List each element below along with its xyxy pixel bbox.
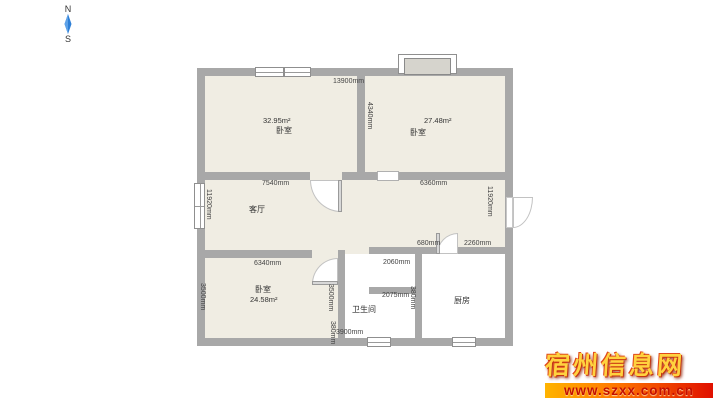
kitchen-label: 厨房 [454,297,470,305]
kitchen-bath-floor [345,254,505,338]
dim-sw-left-height: 3500mm [199,283,206,310]
dim-bath-right-stub: 380mm [409,286,416,309]
compass: N S [55,4,81,44]
door-leaf-sw-bedroom [312,281,338,285]
dim-left-height: 11920mm [205,189,212,220]
wall-bedroom-divider [357,76,365,172]
door-opening-ne-bedroom [377,171,399,181]
bedroom-sw-area: 24.58m² [250,296,278,304]
dim-ne-width: 6360mm [420,180,447,187]
dim-ne-divider: 4340mm [366,102,373,129]
compass-needle-icon [62,14,74,34]
window-nw-left [255,67,284,77]
dim-kitchen-door-offset: 680mm [417,240,440,247]
dim-nw-width: 7540mm [262,180,289,187]
bedroom-nw-label: 卧室 [276,127,292,135]
compass-north-label: N [55,4,81,14]
bedroom-ne-label: 卧室 [410,129,426,137]
dim-sw-bottom-stub: 380mm [329,321,336,344]
watermark-site-name: 宿州信息网 [544,350,718,382]
window-nw-right [284,67,311,77]
wall-under-bedrooms-left [205,172,310,180]
floorplan-canvas: N S 32.95m² 卧室 27.48m² 卧室 客厅 卧室 24. [0,0,720,405]
entry-door-opening [506,197,513,228]
door-leaf-nw-bedroom [338,180,342,212]
wall-sw-bedroom-top [205,250,312,258]
bathroom-label: 卫生间 [352,306,376,314]
wall-outer-top [197,68,513,76]
dim-sw-right-height: 3500mm [327,284,334,311]
dim-kitchen-width: 2260mm [464,240,491,247]
wall-kitchen-left [415,247,422,346]
bedroom-ne-area: 27.48m² [424,117,452,125]
dim-bottom-width: 3900mm [336,329,363,336]
window-bathroom [367,337,391,347]
compass-south-label: S [55,34,81,44]
window-left-wall [194,183,205,229]
entry-door-arc [513,197,533,228]
watermark-url: www.szxx.com.cn [545,383,713,398]
wall-hall-top [369,247,437,254]
dim-top-width: 13900mm [333,78,364,85]
dim-bath-top: 2075mm [382,292,409,299]
wall-under-bedrooms-right [399,172,505,180]
bedroom-sw-label: 卧室 [255,286,271,294]
dim-hall-top: 2060mm [383,259,410,266]
watermark: 宿州信息网 www.szxx.com.cn [545,350,717,398]
wall-under-bedrooms-mid [342,172,377,180]
wall-kitchen-top [458,247,505,254]
bay-window-inner [404,58,451,75]
living-room-label: 客厅 [249,206,265,214]
dim-sw-width: 6340mm [254,260,281,267]
dim-right-height: 11920mm [486,186,493,217]
window-kitchen [452,337,476,347]
bedroom-nw-area: 32.95m² [263,117,291,125]
